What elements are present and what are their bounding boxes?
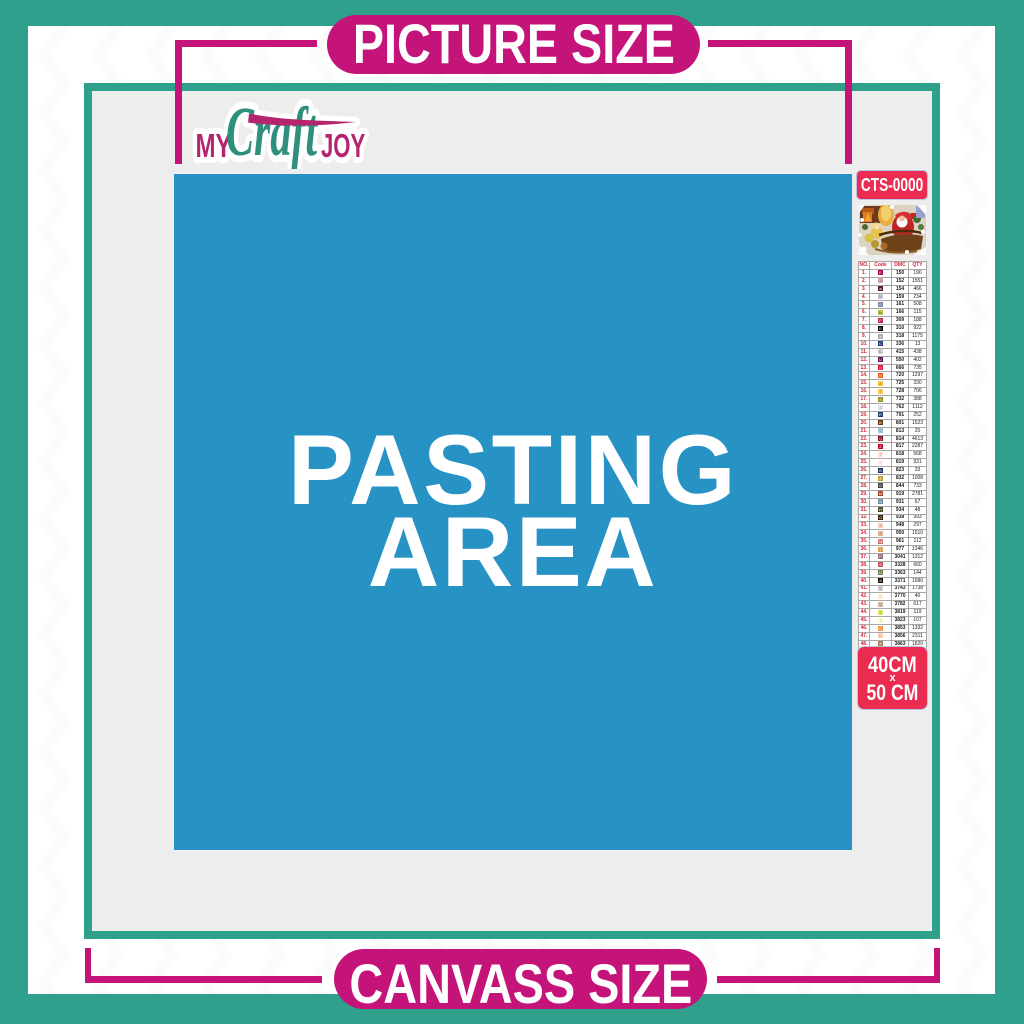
svg-text:JOY: JOY: [321, 128, 365, 164]
svg-text:Craft: Craft: [226, 94, 318, 169]
